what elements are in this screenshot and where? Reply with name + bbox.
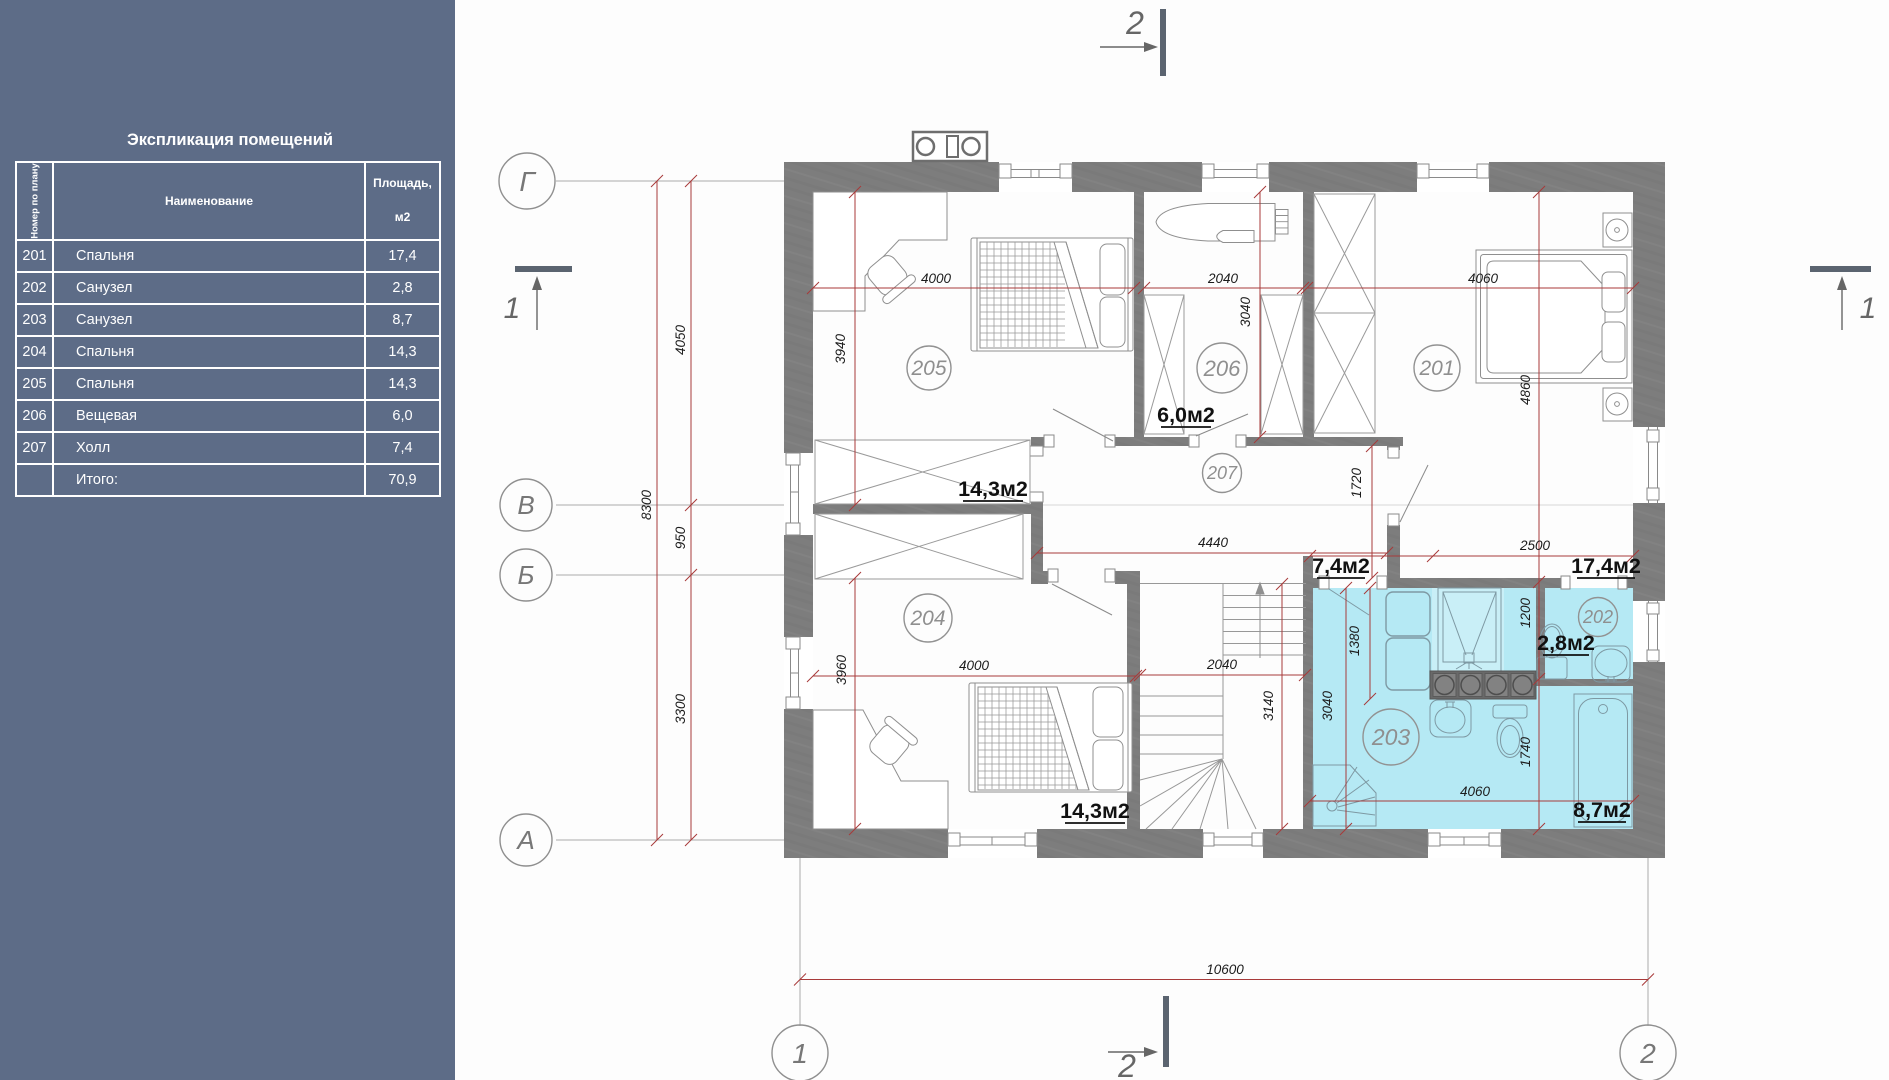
svg-text:2040: 2040: [1206, 657, 1238, 672]
svg-text:14,3м2: 14,3м2: [1060, 799, 1130, 823]
svg-text:950: 950: [673, 526, 688, 549]
svg-text:2500: 2500: [1519, 538, 1551, 553]
svg-text:3040: 3040: [1238, 296, 1253, 327]
svg-text:1: 1: [1860, 292, 1877, 325]
svg-text:207: 207: [1206, 463, 1238, 483]
svg-text:203: 203: [1371, 724, 1411, 750]
svg-text:205: 205: [910, 357, 946, 380]
svg-text:7,4м2: 7,4м2: [1312, 554, 1370, 578]
svg-text:В: В: [517, 490, 534, 520]
svg-text:1: 1: [792, 1038, 808, 1069]
svg-text:3140: 3140: [1261, 690, 1276, 721]
svg-text:3300: 3300: [673, 693, 688, 724]
svg-text:2: 2: [1117, 1048, 1136, 1080]
svg-text:4060: 4060: [1460, 784, 1491, 799]
svg-text:206: 206: [1203, 356, 1241, 381]
svg-text:1380: 1380: [1347, 625, 1362, 656]
svg-text:4060: 4060: [1468, 271, 1499, 286]
svg-text:Б: Б: [518, 560, 535, 590]
svg-text:1720: 1720: [1349, 467, 1364, 498]
svg-text:3940: 3940: [833, 333, 848, 364]
svg-text:4050: 4050: [673, 324, 688, 355]
svg-text:4440: 4440: [1198, 535, 1229, 550]
svg-text:10600: 10600: [1206, 962, 1244, 977]
svg-text:2,8м2: 2,8м2: [1537, 631, 1595, 655]
svg-text:6,0м2: 6,0м2: [1157, 403, 1215, 427]
svg-text:4860: 4860: [1518, 374, 1533, 405]
svg-text:А: А: [515, 825, 534, 855]
svg-text:204: 204: [909, 607, 945, 630]
svg-text:2: 2: [1639, 1038, 1656, 1069]
svg-text:17,4м2: 17,4м2: [1571, 554, 1641, 578]
svg-text:3960: 3960: [834, 654, 849, 685]
svg-text:2: 2: [1125, 5, 1144, 41]
svg-text:1: 1: [504, 292, 521, 325]
svg-text:Г: Г: [519, 166, 536, 197]
svg-text:3040: 3040: [1320, 690, 1335, 721]
svg-text:201: 201: [1418, 357, 1454, 380]
svg-text:202: 202: [1582, 607, 1613, 627]
svg-text:4000: 4000: [921, 271, 952, 286]
svg-text:8300: 8300: [639, 489, 654, 520]
svg-text:4000: 4000: [959, 658, 990, 673]
svg-text:2040: 2040: [1207, 271, 1239, 286]
svg-text:14,3м2: 14,3м2: [958, 477, 1028, 501]
svg-text:1740: 1740: [1518, 736, 1533, 767]
svg-text:1200: 1200: [1518, 597, 1533, 628]
svg-text:8,7м2: 8,7м2: [1573, 798, 1631, 822]
